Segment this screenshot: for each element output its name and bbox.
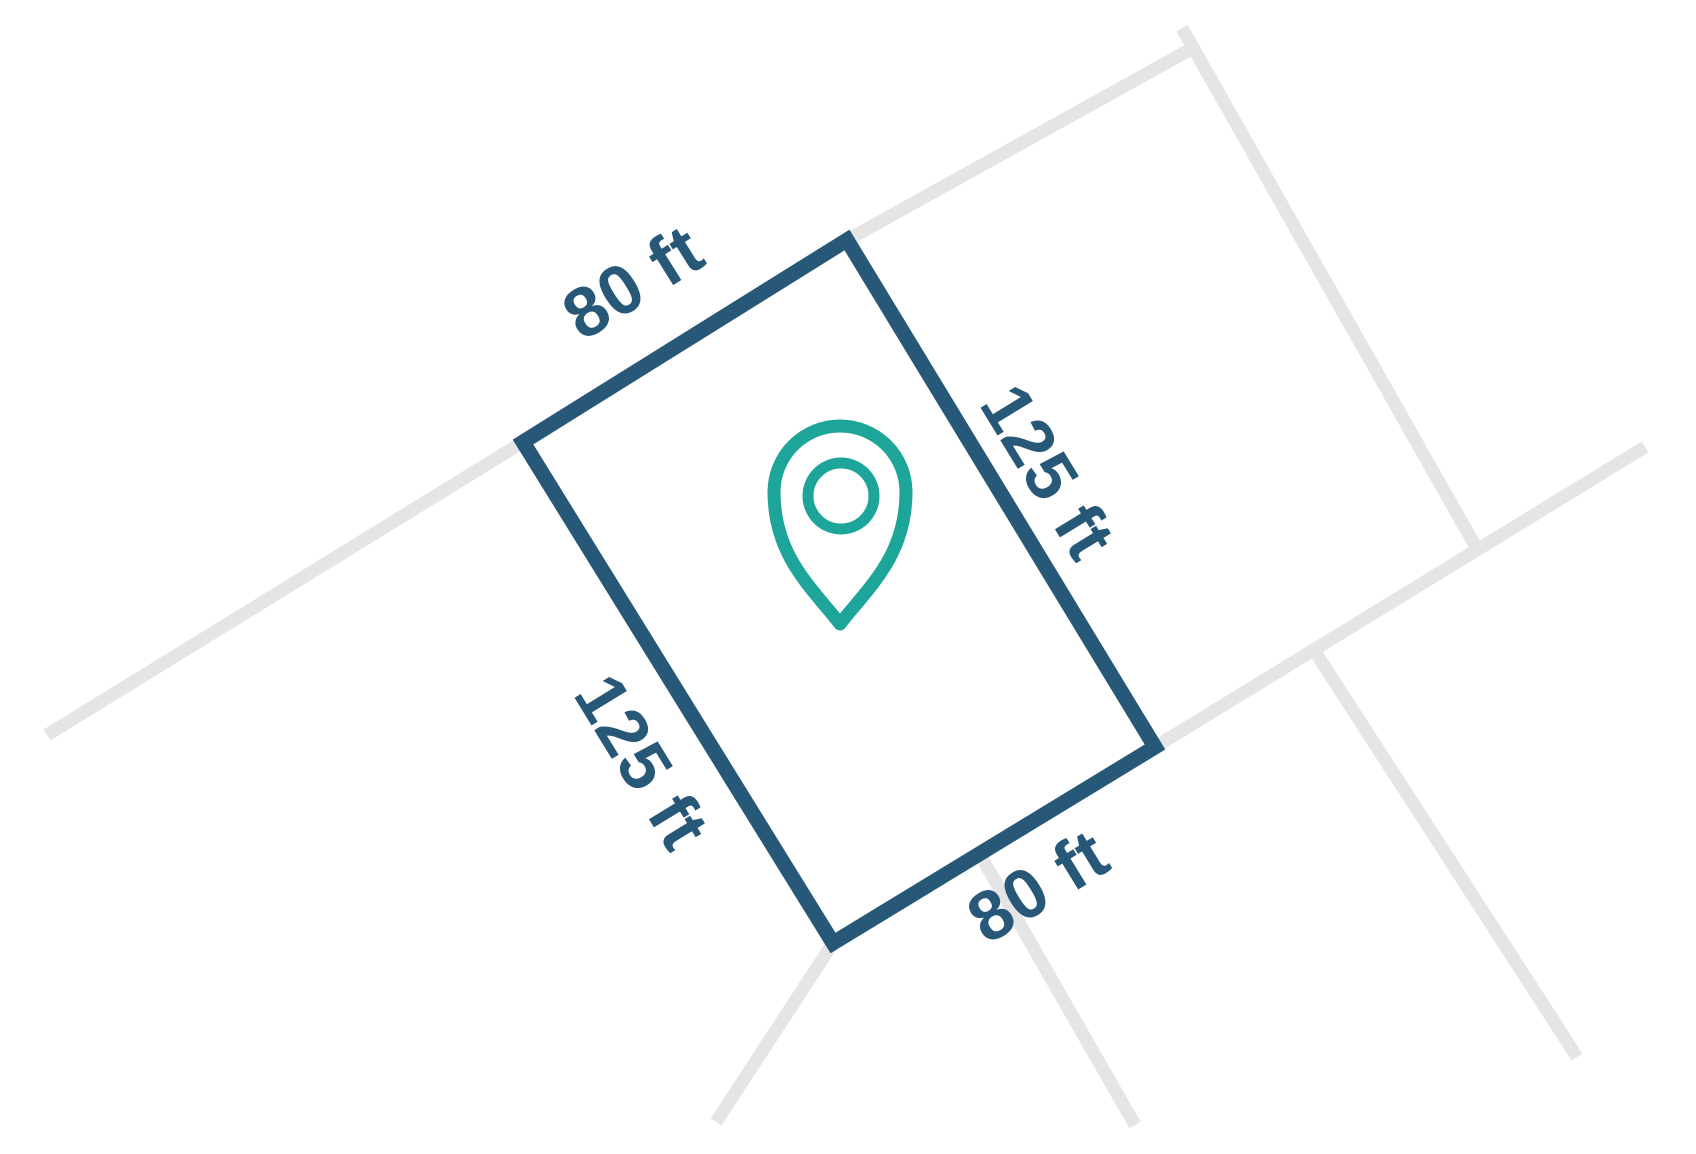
road-line-south <box>716 943 833 1122</box>
lot-diagram: 80 ft 125 ft 125 ft 80 ft <box>0 0 1696 1154</box>
road-line-upper-right-cross <box>1182 28 1477 549</box>
road-line-northeast <box>847 48 1193 240</box>
lot-diagram-canvas: 80 ft 125 ft 125 ft 80 ft <box>0 0 1696 1154</box>
road-line-southwest <box>47 442 523 735</box>
road-line-lower-right-cross <box>1314 650 1577 1057</box>
road-line-east <box>1155 447 1645 747</box>
